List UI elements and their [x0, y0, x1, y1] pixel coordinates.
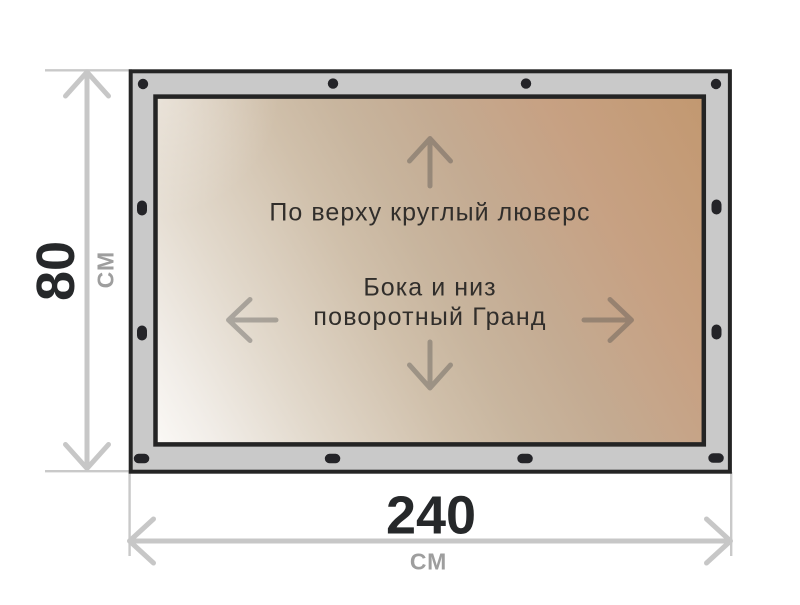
svg-text:СМ: СМ: [93, 251, 119, 288]
svg-text:240: 240: [386, 485, 476, 545]
svg-text:По верху круглый люверс: По верху круглый люверс: [269, 199, 590, 227]
svg-text:80: 80: [26, 241, 86, 301]
svg-text:поворотный Гранд: поворотный Гранд: [313, 303, 546, 331]
svg-text:Бока и низ: Бока и низ: [363, 274, 496, 302]
svg-text:СМ: СМ: [410, 549, 447, 575]
